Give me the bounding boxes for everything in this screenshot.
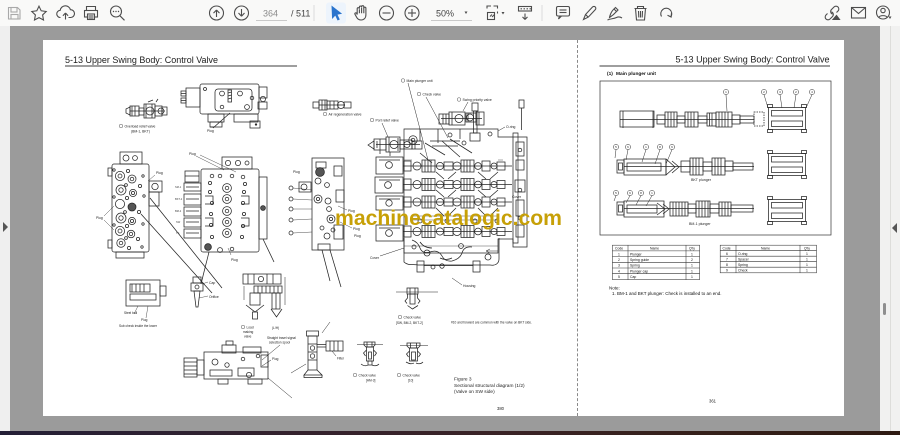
svg-text:6: 6 (726, 252, 728, 256)
svg-text:Plug: Plug (96, 216, 103, 220)
svg-text:O-ring: O-ring (738, 252, 748, 256)
svg-text:5-13 Upper Swing Body: Control: 5-13 Upper Swing Body: Control Valve (676, 55, 830, 65)
svg-text:Plunger cap: Plunger cap (630, 269, 648, 273)
svg-text:1: 1 (618, 252, 620, 256)
svg-text:9: 9 (726, 268, 728, 272)
svg-text:TS: TS (176, 231, 180, 235)
svg-text:9: 9 (671, 145, 673, 149)
svg-text:Name: Name (761, 246, 770, 250)
svg-text:(BM-1, BKT): (BM-1, BKT) (131, 130, 150, 134)
svg-text:Plug: Plug (293, 170, 300, 174)
svg-text:Housing: Housing (463, 284, 476, 288)
svg-text:Check valve: Check valve (404, 316, 422, 320)
svg-text:Plug: Plug (141, 318, 148, 322)
svg-text:Cover: Cover (370, 256, 380, 260)
svg-text:Code: Code (723, 246, 731, 250)
svg-text:[AM-3]: [AM-3] (366, 379, 376, 383)
svg-text:SW: SW (176, 220, 181, 224)
svg-text:5: 5 (618, 275, 620, 279)
svg-text:(1): (1) (607, 71, 613, 77)
svg-text:8: 8 (640, 191, 642, 195)
svg-text:[10]: [10] (408, 379, 413, 383)
svg-text:Spring guide: Spring guide (630, 258, 649, 262)
svg-text:1: 1 (691, 252, 693, 256)
svg-text:Plug: Plug (207, 129, 214, 133)
svg-text:Straight travel signal: Straight travel signal (267, 336, 296, 340)
svg-text:Sub check inside the lower: Sub check inside the lower (119, 324, 158, 328)
svg-text:5-13 Upper Swing Body: Control: 5-13 Upper Swing Body: Control Valve (65, 55, 218, 65)
svg-text:1: 1 (651, 191, 653, 195)
svg-text:(L/H): (L/H) (272, 326, 279, 330)
svg-text:BM-1 plunger: BM-1 plunger (689, 222, 711, 226)
svg-text:Main plunger unit: Main plunger unit (407, 79, 433, 83)
svg-text:Main plunger unit: Main plunger unit (616, 71, 656, 77)
svg-text:SM-1: SM-1 (175, 185, 182, 189)
svg-text:Orifice: Orifice (209, 295, 219, 299)
svg-text:#10 and forward are common wit: #10 and forward are common with the valv… (451, 321, 532, 325)
svg-text:Plug: Plug (272, 357, 279, 361)
svg-text:Cover: Cover (512, 195, 522, 199)
svg-text:valve: valve (244, 335, 252, 339)
svg-text:Code: Code (615, 247, 623, 251)
svg-text:BM-2: BM-2 (175, 209, 182, 213)
svg-text:8: 8 (659, 145, 661, 149)
svg-text:Figure 3: Figure 3 (454, 377, 472, 383)
svg-text:Q'ty: Q'ty (804, 246, 810, 250)
svg-text:380: 380 (497, 406, 505, 411)
svg-text:7: 7 (726, 257, 728, 261)
svg-text:Steel ball: Steel ball (124, 311, 137, 315)
svg-text:1: 1 (806, 257, 808, 261)
svg-text:2: 2 (763, 90, 765, 94)
svg-text:3: 3 (779, 90, 781, 94)
svg-text:1: 1 (691, 269, 693, 273)
svg-text:machinecatalogic.com: machinecatalogic.com (335, 207, 562, 230)
svg-text:4: 4 (618, 269, 620, 273)
svg-text:2: 2 (618, 258, 620, 262)
svg-text:1: 1 (806, 268, 808, 272)
svg-text:1: 1 (645, 145, 647, 149)
svg-text:Spring: Spring (630, 264, 640, 268)
svg-text:Port relief valve: Port relief valve (376, 119, 399, 123)
svg-text:9: 9 (629, 191, 631, 195)
svg-text:Name: Name (650, 247, 659, 251)
svg-text:5: 5 (615, 145, 617, 149)
svg-text:Load: Load (247, 326, 254, 330)
svg-text:Check valve: Check valve (403, 374, 421, 378)
svg-text:Plug: Plug (189, 152, 196, 156)
svg-text:8: 8 (726, 263, 728, 267)
svg-text:Filter: Filter (337, 357, 345, 361)
svg-text:Plug: Plug (354, 234, 361, 238)
svg-text:1. BM-1 and BKT plunger: Check: 1. BM-1 and BKT plunger: Check is instal… (612, 291, 721, 296)
svg-text:Plug: Plug (156, 171, 163, 175)
svg-text:3: 3 (618, 264, 620, 268)
svg-text:O-ring: O-ring (506, 125, 516, 129)
svg-text:Plug: Plug (231, 258, 238, 262)
svg-text:Spacer: Spacer (738, 257, 750, 261)
svg-text:Sectional structural diagram (: Sectional structural diagram (1/2) (454, 383, 525, 389)
svg-text:5: 5 (615, 191, 617, 195)
svg-text:2: 2 (691, 258, 693, 262)
svg-text:1: 1 (725, 90, 727, 94)
svg-text:Spring: Spring (738, 263, 748, 267)
svg-text:Plunger: Plunger (630, 252, 643, 256)
svg-text:1: 1 (806, 263, 808, 267)
svg-text:Cap: Cap (630, 275, 636, 279)
svg-text:1: 1 (691, 264, 693, 268)
svg-text:Q'ty: Q'ty (689, 247, 695, 251)
svg-text:4: 4 (811, 90, 813, 94)
svg-text:1: 1 (691, 275, 693, 279)
svg-text:(Valve on SW side): (Valve on SW side) (454, 389, 495, 395)
svg-text:making: making (243, 330, 254, 334)
svg-text:Check: Check (738, 268, 748, 272)
svg-text:6: 6 (627, 145, 629, 149)
svg-text:Cap: Cap (209, 281, 215, 285)
svg-text:Swing priority valve: Swing priority valve (463, 98, 492, 102)
svg-text:Air regeneration valve: Air regeneration valve (329, 113, 362, 117)
svg-text:Check valve: Check valve (359, 374, 377, 378)
svg-text:361: 361 (709, 399, 717, 404)
svg-text:1: 1 (806, 252, 808, 256)
svg-text:Check valve: Check valve (423, 93, 442, 97)
svg-text:2: 2 (795, 90, 797, 94)
svg-text:Note:: Note: (609, 286, 620, 291)
svg-text:[SW, BM-2, BKT-2]: [SW, BM-2, BKT-2] (396, 321, 423, 325)
svg-text:Overload relief valve: Overload relief valve (125, 125, 156, 129)
svg-text:BKT plunger: BKT plunger (691, 178, 712, 182)
svg-text:BKT-2: BKT-2 (175, 197, 183, 201)
svg-text:selection spool: selection spool (269, 341, 290, 345)
